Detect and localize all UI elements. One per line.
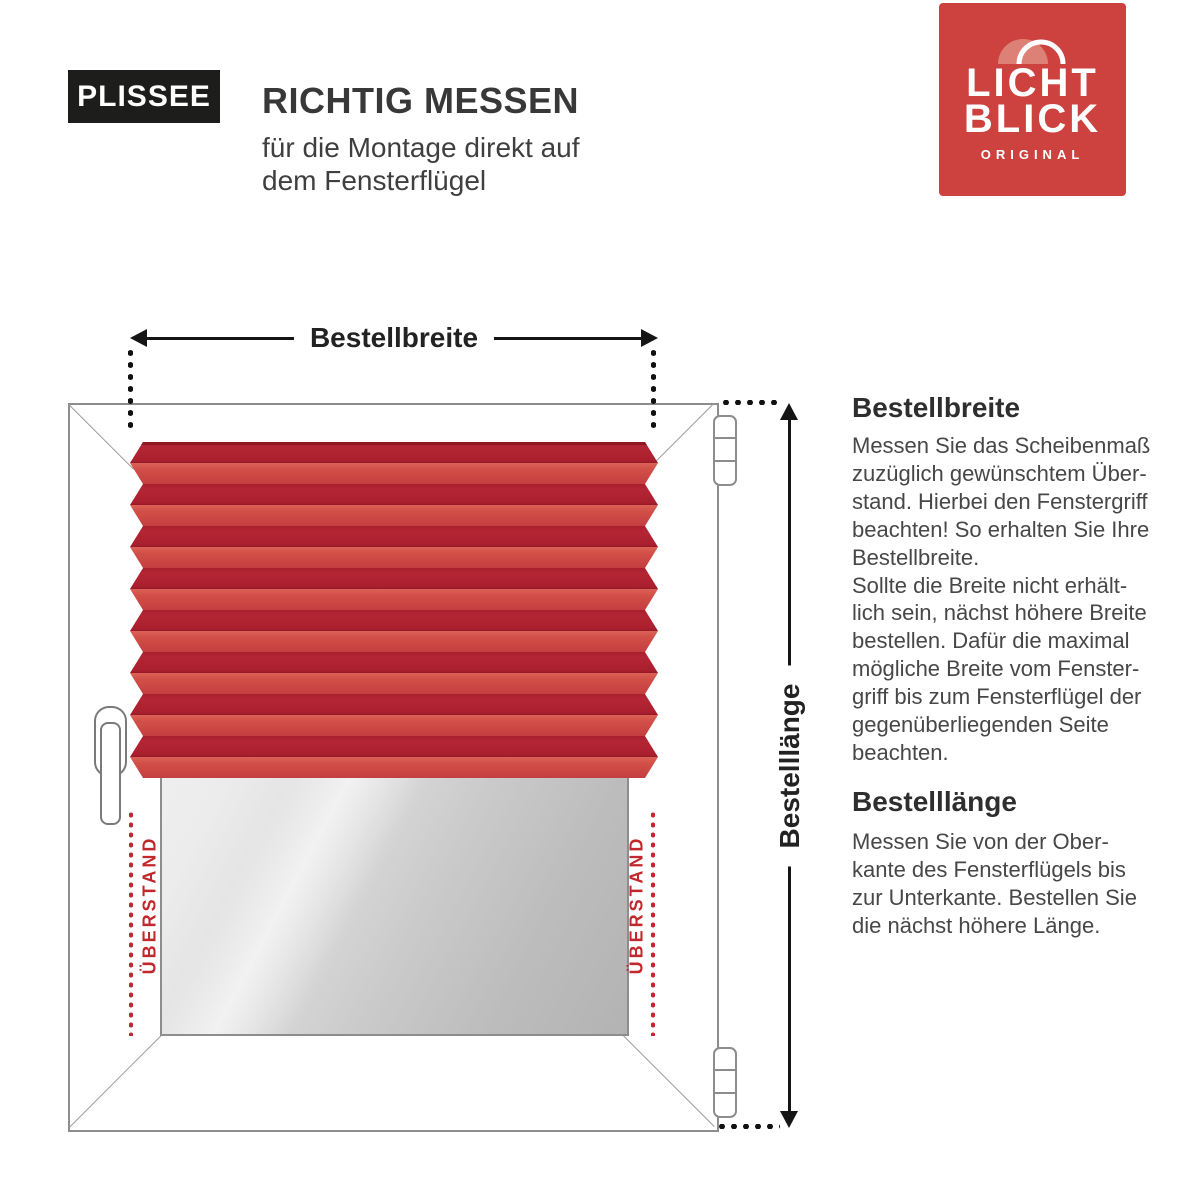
infographic-page: PLISSEE RICHTIG MESSEN für die Montage d… [0,0,1200,1200]
height-extent-dotted-bottom [716,1124,780,1129]
hinge-divider [715,1092,735,1094]
width-extent-dotted-left [128,347,133,429]
height-measure-arrow: Bestelllänge [775,403,805,1128]
brand-name-line1: LICHT [966,65,1099,101]
page-subtitle: für die Montage direkt auf dem Fensterfl… [262,131,580,197]
overhang-dotted-left [129,810,133,1036]
window-hinge-bottom [713,1047,737,1118]
hinge-divider [715,437,735,439]
height-measure-label: Bestelllänge [774,665,806,866]
arrowhead-down-icon [780,1111,798,1128]
width-extent-dotted-right [651,347,656,429]
window-handle-grip [100,722,121,825]
height-extent-dotted-top [720,400,780,405]
section-text-bestelllaenge: Messen Sie von der Ober- kante des Fenst… [852,828,1182,940]
product-badge-label: PLISSEE [77,80,211,114]
pleated-blind [130,442,658,778]
brand-name-line2: BLICK [964,101,1101,137]
width-measure-arrow: Bestellbreite [130,323,658,353]
overhang-label-left: ÜBERSTAND [140,836,161,975]
brand-logo: LICHT BLICK ORIGINAL [939,3,1126,196]
section-heading-bestellbreite: Bestellbreite [852,392,1020,424]
brand-subline: ORIGINAL [981,147,1085,162]
hinge-divider [715,1069,735,1071]
hinge-divider [715,460,735,462]
window-hinge-top [713,415,737,486]
page-title: RICHTIG MESSEN [262,80,579,122]
overhang-dotted-right [651,810,655,1036]
section-heading-bestelllaenge: Bestelllänge [852,786,1017,818]
arrowhead-left-icon [130,329,147,347]
section-text-bestellbreite: Messen Sie das Scheibenmaß zuzüglich gew… [852,432,1182,767]
overhang-label-right: ÜBERSTAND [627,836,648,975]
arrowhead-up-icon [780,403,798,420]
product-badge: PLISSEE [68,70,220,123]
sun-arc-icon [995,31,1071,65]
arrowhead-right-icon [641,329,658,347]
width-measure-label: Bestellbreite [294,322,494,354]
